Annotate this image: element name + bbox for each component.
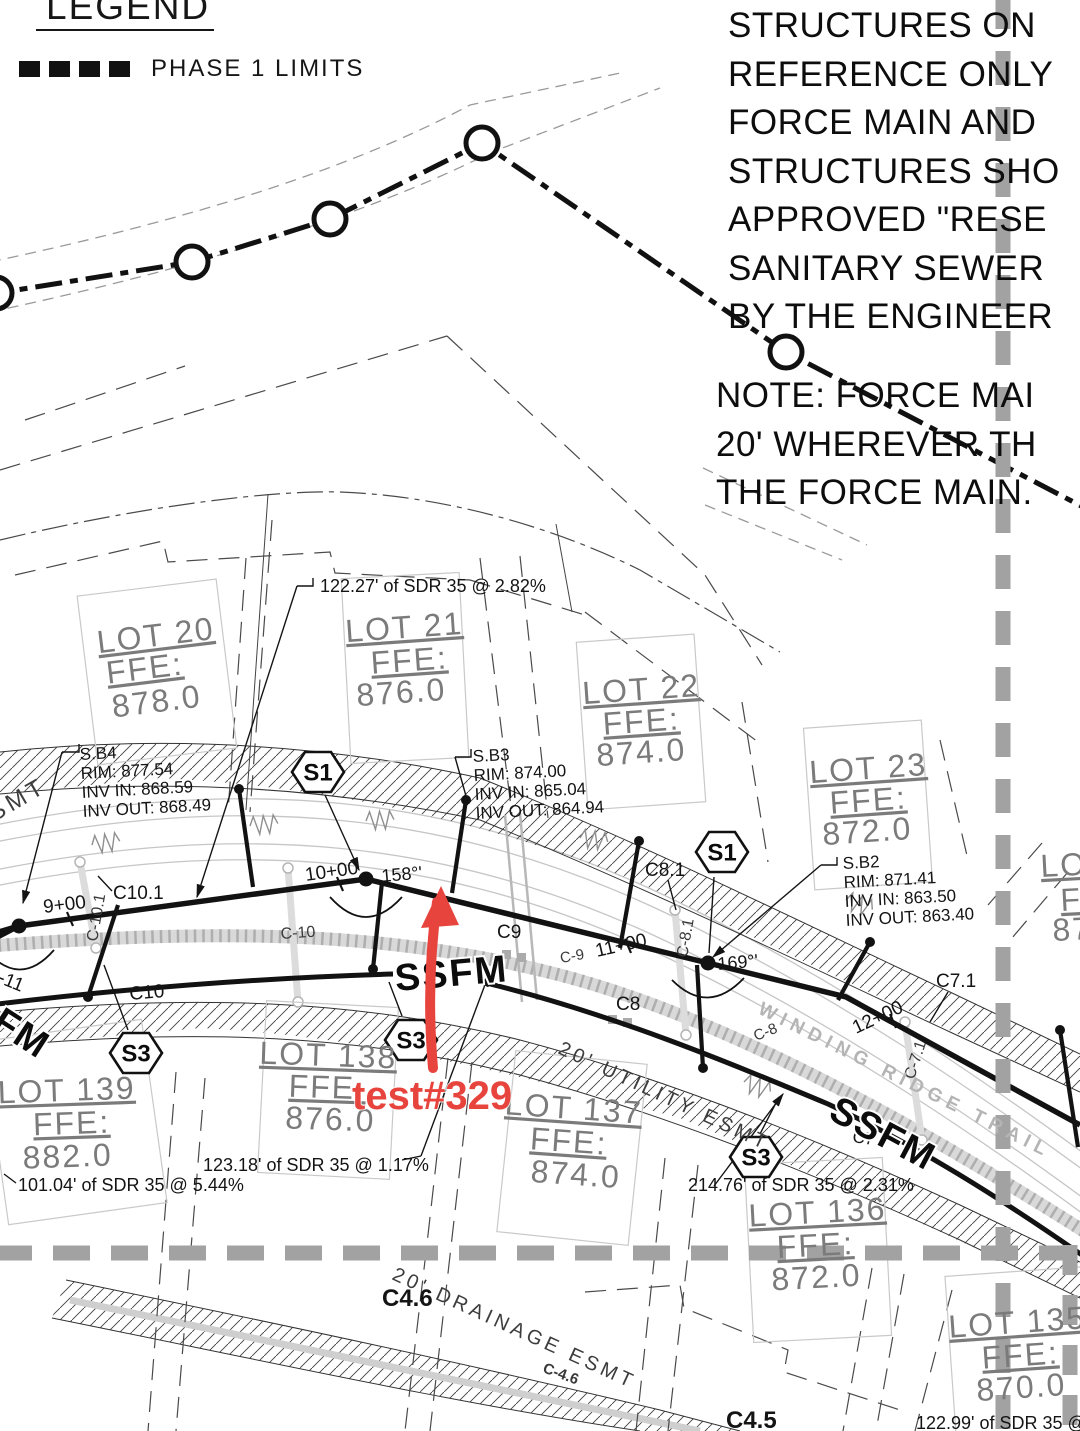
curve-label-c8-1: C8.1 [645,860,685,881]
deflection-angle-158: 158°' [381,863,423,886]
legend-title: LEGEND [46,0,210,28]
station-9-00: 9+00 [42,892,87,918]
callout-sb3-title: S.B3 [472,745,510,766]
curve-label-c7-1: C7.1 [936,971,976,992]
pipe-label-12299: 122.99' of SDR 35 @ 7 [916,1413,1080,1431]
note-line: BY THE ENGINEER [728,293,1060,342]
lot-22-ffe-value: 874.0 [595,731,687,773]
phase-limit-swatch [49,61,70,77]
curve-label-c10-1: C10.1 [113,883,164,904]
pipe-label-123: 123.18' of SDR 35 @ 1.17% [203,1155,429,1175]
lot-139-ffe-value: 882.0 [22,1136,113,1175]
pipe-label-122: 122.27' of SDR 35 @ 2.82% [320,576,546,596]
structure-badge-s1-a-label: S1 [303,760,332,787]
structure-badge-s3-a: S3 [110,1033,162,1073]
force-main-note-block: NOTE: FORCE MAI 20' WHEREVER TH THE FORC… [716,372,1037,518]
note-line: NOTE: FORCE MAI [716,372,1037,421]
curve-label-c-10: C-10 [280,924,316,943]
note-line: STRUCTURES ON [728,2,1060,51]
curve-label-c4-5: C4.5 [726,1407,777,1431]
structure-badge-s1-b: S1 [696,832,748,872]
note-line: SANITARY SEWER [728,245,1060,294]
curve-label-c10: C10 [129,981,166,1005]
curve-label-c9: C9 [497,922,521,943]
lot-21-ffe-value: 876.0 [355,671,447,713]
annotation-test329: test#329 [352,1074,512,1118]
general-notes-block: STRUCTURES ON REFERENCE ONLY FORCE MAIN … [728,2,1060,342]
legend-item-label: PHASE 1 LIMITS [151,55,364,83]
lot-137-ffe-value: 874.0 [530,1153,622,1195]
note-line: 20' WHEREVER TH [716,421,1037,470]
lot-135-ffe-value: 870.0 [975,1366,1067,1408]
structure-badge-s1-a: S1 [292,752,344,792]
lot-edge-name: LOT [1039,844,1080,884]
note-line: APPROVED "RESE [728,196,1060,245]
structure-badge-s3-b-label: S3 [396,1028,425,1055]
lot-edge-ffe-value: 87 [1051,910,1080,948]
curve-label-c8: C8 [616,994,640,1015]
structure-badge-s3-a-label: S3 [121,1041,150,1068]
curve-label-c-11: C-11 [0,962,27,996]
callout-sb4-title: S.B4 [79,743,117,764]
fm-structure-circle [176,246,208,278]
legend-underline [36,29,214,31]
note-line: FORCE MAIN AND [728,99,1060,148]
site-plan-page: { "annotation": { "text": "test#329", "c… [0,0,1080,1431]
ssfm-label-center: SSFM [393,948,510,1000]
lot-23-ffe-value: 872.0 [821,810,913,852]
fm-structure-circle [0,277,12,309]
curve-label-c-9: C-9 [559,946,586,967]
phase-limit-swatch [109,61,130,77]
structure-badge-s1-b-label: S1 [707,840,736,867]
phase-limit-swatch [79,61,100,77]
note-line: STRUCTURES SHO [728,148,1060,197]
pipe-label-101: 101.04' of SDR 35 @ 5.44% [18,1175,244,1195]
fm-structure-circle [314,203,346,235]
note-line: THE FORCE MAIN. [716,469,1037,518]
legend-row: PHASE 1 LIMITS [19,55,364,83]
lot-136-ffe-value: 872.0 [771,1257,863,1298]
deflection-angle-169: 169°' [717,951,759,974]
note-line: REFERENCE ONLY [728,51,1060,100]
callout-sb2-title: S.B2 [842,852,880,873]
fm-structure-circle [466,127,498,159]
phase-limit-swatch [19,61,40,77]
